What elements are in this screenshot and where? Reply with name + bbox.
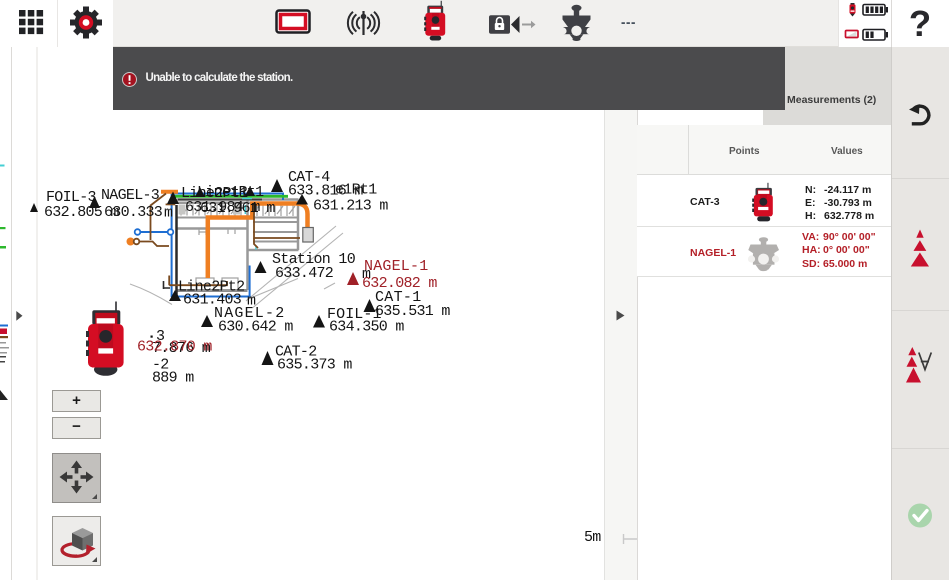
svg-text:e1Rt1: e1Rt1 <box>335 182 377 199</box>
svg-text:?: ? <box>909 3 931 44</box>
svg-text:632.082 m: 632.082 m <box>362 275 437 292</box>
svg-text:m: m <box>164 205 173 222</box>
svg-text:633.472: 633.472 <box>275 265 333 282</box>
svg-text:630.642 m: 630.642 m <box>218 319 293 336</box>
svg-text:631.403: 631.403 <box>183 292 242 309</box>
svg-text:NAGEL-1: NAGEL-1 <box>364 258 428 275</box>
svg-text:889 m: 889 m <box>152 370 194 387</box>
svg-text:634.350 m: 634.350 m <box>329 319 404 336</box>
svg-text:5m: 5m <box>584 529 601 546</box>
svg-text:m: m <box>247 293 256 310</box>
svg-text:635.531 m: 635.531 m <box>375 303 450 320</box>
svg-text:631.961 m: 631.961 m <box>200 200 275 217</box>
svg-text:635.373 m: 635.373 m <box>277 357 352 374</box>
svg-text:631.213 m: 631.213 m <box>313 198 388 215</box>
svg-text:632.870 m: 632.870 m <box>137 339 212 356</box>
svg-text:630.333: 630.333 <box>104 204 163 221</box>
svg-text:NAGEL-3: NAGEL-3 <box>101 187 160 204</box>
